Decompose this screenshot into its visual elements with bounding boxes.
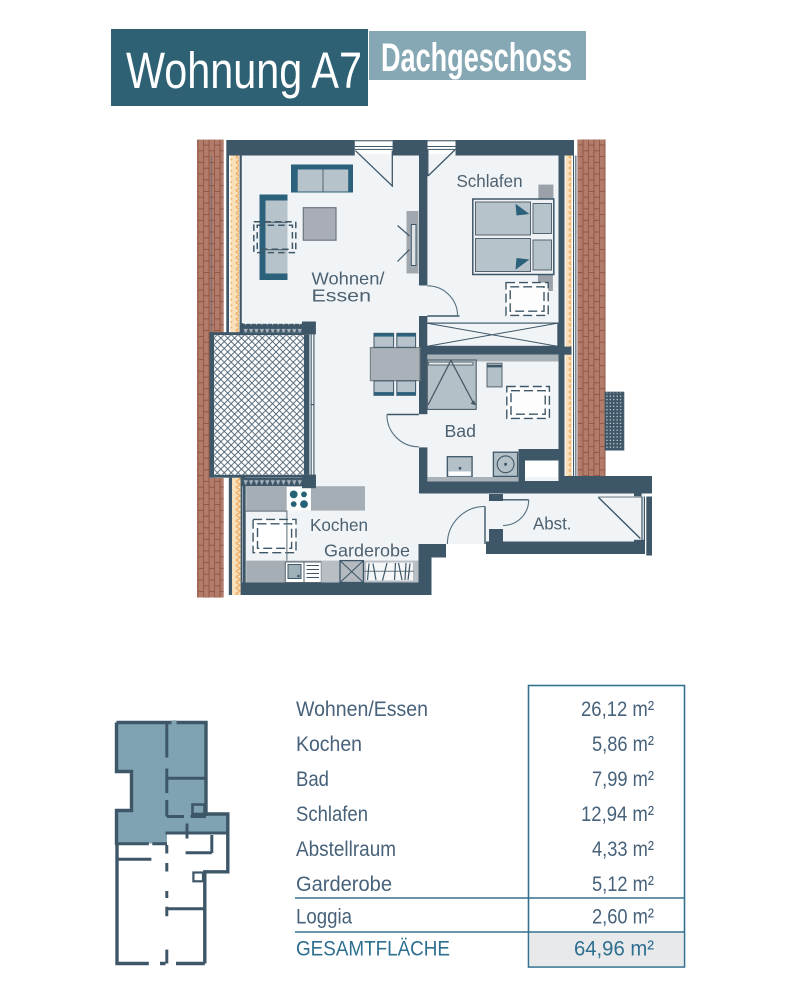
svg-text:7,99 m²: 7,99 m² xyxy=(592,767,654,791)
svg-text:Garderobe: Garderobe xyxy=(324,541,410,561)
svg-text:12,94 m²: 12,94 m² xyxy=(581,802,654,826)
svg-text:Dachgeschoss: Dachgeschoss xyxy=(381,36,572,80)
svg-text:Bad: Bad xyxy=(296,767,329,791)
svg-text:Kochen: Kochen xyxy=(310,515,368,535)
svg-text:Schlafen: Schlafen xyxy=(457,171,523,191)
svg-text:Abst.: Abst. xyxy=(533,514,572,534)
svg-text:GESAMTFLÄCHE: GESAMTFLÄCHE xyxy=(296,937,450,961)
svg-text:Abstellraum: Abstellraum xyxy=(296,837,396,861)
svg-text:64,96 m²: 64,96 m² xyxy=(574,937,654,961)
svg-text:Wohnen/Essen: Wohnen/Essen xyxy=(296,697,428,721)
svg-text:Wohnung A7: Wohnung A7 xyxy=(126,42,362,99)
svg-text:Schlafen: Schlafen xyxy=(296,802,368,826)
svg-text:5,86 m²: 5,86 m² xyxy=(592,732,654,756)
svg-text:Loggia: Loggia xyxy=(296,905,352,929)
svg-text:4,33 m²: 4,33 m² xyxy=(592,837,654,861)
svg-text:26,12 m²: 26,12 m² xyxy=(581,697,654,721)
svg-text:Garderobe: Garderobe xyxy=(296,872,392,896)
svg-text:5,12 m²: 5,12 m² xyxy=(592,872,654,896)
svg-text:2,60 m²: 2,60 m² xyxy=(592,905,654,929)
svg-text:Bad: Bad xyxy=(445,421,477,441)
svg-text:Kochen: Kochen xyxy=(296,732,362,756)
svg-text:Essen: Essen xyxy=(312,286,372,306)
